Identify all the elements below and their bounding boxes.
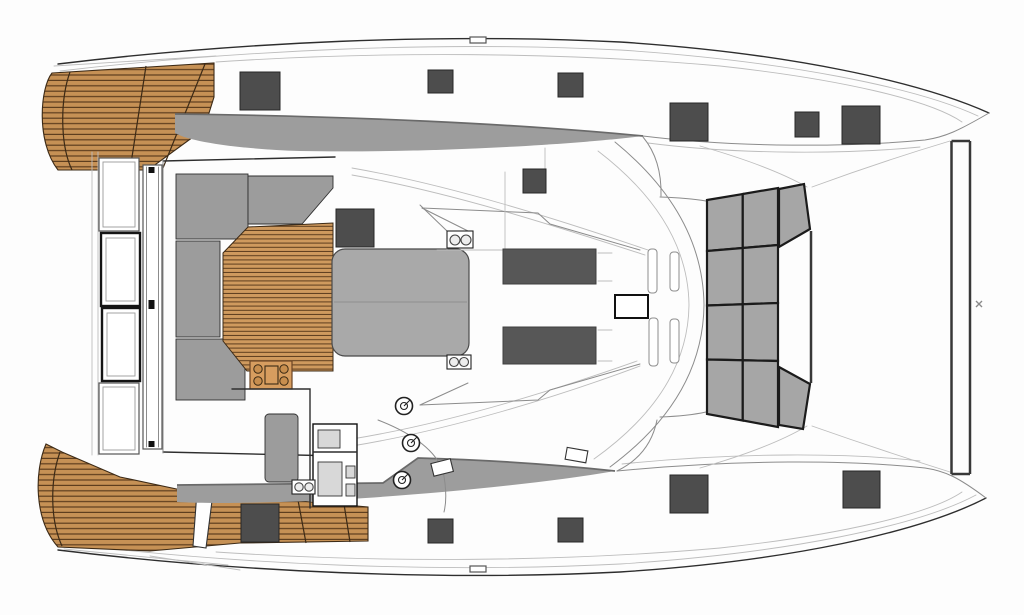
deck-hatch [842, 106, 880, 144]
deck-hatch [558, 518, 583, 542]
trampoline-panel [707, 194, 743, 251]
sink-bowl [450, 235, 460, 245]
windscreen-rail [649, 318, 658, 366]
trampoline-panel [707, 360, 743, 421]
deck-hatch [336, 209, 374, 247]
trampoline-panel [743, 360, 778, 427]
deck-hatch [558, 73, 583, 97]
cockpit-bench-aft-upper [176, 174, 248, 239]
trampoline-panel [743, 303, 778, 361]
deck-hatch [795, 112, 819, 137]
trampoline-panel [743, 188, 778, 248]
deck-hatch [428, 519, 453, 543]
deck-hatch [240, 72, 280, 110]
sink-bowl [461, 235, 471, 245]
deck-hatch [241, 504, 279, 542]
cleat-notch-starboard [470, 566, 486, 572]
trampoline-panel [707, 248, 743, 306]
throttle-control [346, 484, 355, 496]
windscreen-rail [648, 249, 657, 293]
grill-module [250, 361, 292, 389]
cleat-notch-port [470, 37, 486, 43]
instrument-display [318, 430, 340, 448]
winch [396, 398, 413, 415]
cockpit-bench-port [248, 176, 333, 224]
winch [394, 472, 411, 489]
forward-crossbeam [952, 141, 983, 474]
transom-locker [99, 383, 139, 454]
cup-holder [295, 483, 303, 491]
cup-holder [305, 483, 313, 491]
deck-plan-canvas [0, 0, 1024, 615]
escape-hatch [615, 295, 648, 318]
forestay-mark [976, 301, 982, 307]
transom-lockers [92, 152, 162, 455]
side-step [565, 447, 588, 462]
trampoline-corner-panel [779, 367, 810, 429]
trampoline-panel [707, 304, 743, 360]
trampoline-panel [743, 245, 778, 304]
transom-door [102, 308, 140, 381]
trampoline-corner-panel [779, 184, 810, 247]
deck-hatch [843, 471, 880, 508]
winch [403, 435, 420, 452]
deck-hatch [523, 169, 546, 193]
windscreen-rail [670, 319, 679, 363]
catamaran-deck-plan [0, 0, 1024, 615]
deck-hatch [428, 70, 453, 93]
deck-hatch [670, 103, 708, 141]
cockpit-teak-sole [223, 223, 333, 371]
windscreen-rail [670, 252, 679, 291]
deck-hatch [670, 475, 708, 513]
trampoline [707, 184, 810, 429]
escape-hatch [615, 295, 648, 318]
throttle-control [346, 466, 355, 478]
instrument-display [318, 462, 342, 496]
sliding-door-track [143, 165, 162, 449]
helm-seat [265, 414, 298, 482]
windscreen-rails [648, 249, 679, 366]
transom-locker [99, 158, 139, 231]
skylight [503, 249, 596, 284]
skylight [503, 327, 596, 364]
coachroof-skylights [503, 249, 596, 364]
transom-door [101, 233, 140, 306]
coachroof-window-band-port [175, 114, 643, 151]
cockpit-bench-aft-mid [176, 241, 220, 337]
